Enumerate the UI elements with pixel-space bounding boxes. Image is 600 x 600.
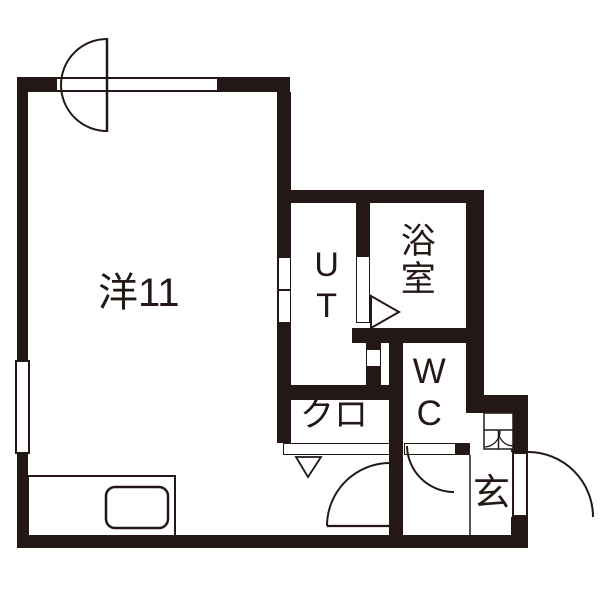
entrance-swing-door-arc [528,452,593,517]
hall-swing-door-arc [327,463,390,526]
room-label-toilet: WC [410,352,447,436]
fixtures-layer [0,0,600,600]
wc-swing-door-arc [407,446,454,492]
room-label-bath: 浴室 [396,222,433,298]
closet-door-arrow [296,457,321,477]
swing-door-arc-top-window-wall [61,39,107,131]
room-label-utility: UT [308,246,344,328]
room-label-entrance: 玄 [473,474,510,513]
room-label-closet: クロ [300,398,368,434]
kitchen-sink [106,487,168,528]
bath-folding-door-triangle [371,296,399,328]
shoe-cabinet-double-doors [484,413,513,449]
room-label-living: 洋11 [98,272,180,314]
floor-plan: 洋11 UT 浴室 WC クロ 玄 [0,0,600,600]
